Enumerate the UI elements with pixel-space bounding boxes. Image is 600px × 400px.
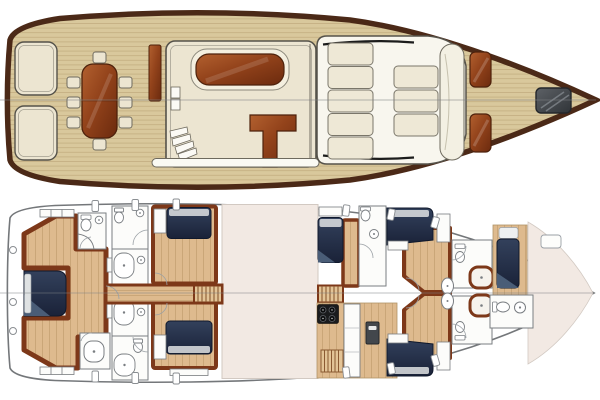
chair	[93, 52, 106, 63]
wardrobe	[154, 209, 166, 233]
main-deck-plan	[0, 13, 596, 187]
chair	[119, 97, 132, 108]
wardrobe	[437, 342, 450, 370]
cushion	[328, 43, 373, 65]
guest-cabin-aft-port	[153, 207, 216, 284]
crew-head	[490, 295, 533, 328]
stern-bench-starboard	[15, 106, 57, 160]
cushion	[394, 90, 438, 112]
bow-bolster	[440, 44, 464, 160]
chair	[67, 97, 80, 108]
master-cabin	[10, 210, 120, 375]
galley-counter	[344, 304, 360, 377]
chair	[67, 77, 80, 88]
side-walkway-step	[152, 159, 319, 168]
cushion	[328, 114, 373, 136]
bow-shelf	[541, 235, 561, 248]
galley-appliance	[366, 322, 379, 344]
master-head	[78, 213, 106, 249]
toilet	[455, 336, 465, 341]
cushion	[394, 114, 438, 136]
cabinet	[388, 241, 408, 250]
head-mid-port	[359, 206, 386, 286]
side-locker	[171, 87, 180, 98]
master-shower-room	[80, 333, 110, 369]
stern-bench-port	[15, 42, 57, 95]
cushion	[328, 90, 373, 112]
stairs-galley	[318, 286, 343, 303]
cushion	[328, 137, 373, 159]
companionway-panel	[149, 45, 161, 101]
floor-grating	[321, 350, 343, 372]
sunpad-cushions-aft	[328, 43, 373, 159]
deck-plan-canvas	[0, 0, 600, 400]
toilet	[455, 244, 465, 249]
side-locker	[171, 99, 180, 110]
toilet	[134, 339, 143, 343]
stove	[318, 305, 339, 324]
chair	[119, 117, 132, 128]
berth-pillow	[499, 228, 518, 239]
cabinet	[388, 334, 408, 343]
cushion	[328, 67, 373, 89]
guest-cabin-aft-starboard	[153, 300, 216, 376]
lower-deck-plan	[0, 199, 594, 384]
chair	[93, 139, 106, 150]
deckhouse	[166, 41, 316, 167]
engine-room-blank	[222, 205, 318, 379]
cockpit-dining-table	[82, 64, 117, 138]
wardrobe	[154, 335, 166, 359]
deck-hatch-starboard	[470, 114, 491, 152]
deck-hatch-port	[470, 52, 491, 87]
chair	[119, 77, 132, 88]
cabinet	[319, 207, 342, 216]
sunpad-cushions-forward	[394, 66, 438, 136]
galley	[317, 303, 397, 378]
toilet	[115, 208, 124, 212]
yacht-deck-plans	[0, 0, 600, 400]
chair	[67, 117, 80, 128]
cushion	[394, 66, 438, 88]
